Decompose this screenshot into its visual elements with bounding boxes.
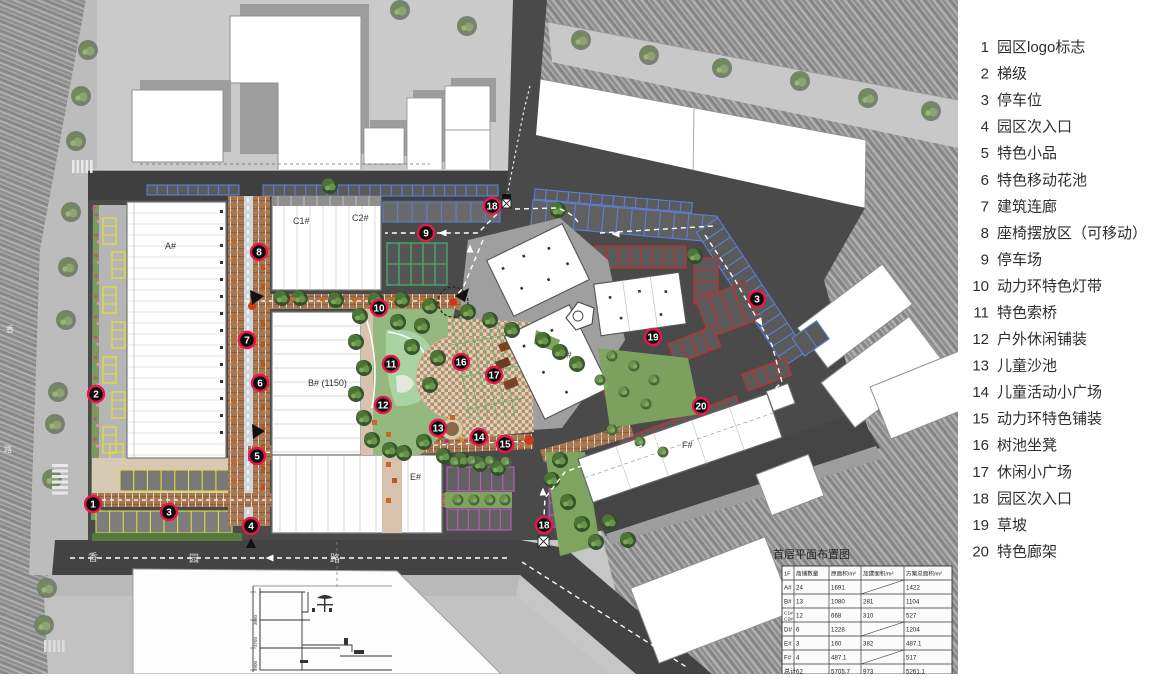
svg-text:香: 香 bbox=[88, 552, 98, 564]
svg-text:特色移动花池: 特色移动花池 bbox=[997, 172, 1087, 189]
svg-text:儿童沙池: 儿童沙池 bbox=[997, 357, 1057, 375]
svg-text:2: 2 bbox=[981, 66, 989, 83]
svg-text:15: 15 bbox=[972, 411, 989, 428]
svg-text:B#: B# bbox=[784, 599, 792, 606]
svg-text:17: 17 bbox=[972, 464, 989, 481]
svg-text:18: 18 bbox=[538, 521, 550, 532]
svg-text:18: 18 bbox=[486, 202, 498, 213]
svg-text:6: 6 bbox=[257, 379, 263, 390]
svg-text:7: 7 bbox=[244, 336, 250, 347]
svg-text:3900: 3900 bbox=[253, 660, 258, 671]
svg-text:3650: 3650 bbox=[253, 614, 258, 625]
svg-text:园区logo标志: 园区logo标志 bbox=[997, 39, 1085, 56]
svg-text:园区次入口: 园区次入口 bbox=[997, 490, 1072, 507]
svg-text:特色小品: 特色小品 bbox=[997, 145, 1057, 162]
svg-text:特色索桥: 特色索桥 bbox=[997, 305, 1057, 322]
svg-text:13: 13 bbox=[796, 599, 803, 606]
svg-text:C1#: C1# bbox=[784, 611, 793, 617]
svg-text:160: 160 bbox=[831, 641, 842, 648]
svg-text:62: 62 bbox=[796, 669, 803, 675]
svg-text:D#: D# bbox=[784, 627, 792, 634]
svg-text:1228: 1228 bbox=[831, 627, 845, 634]
svg-text:C2#: C2# bbox=[784, 617, 793, 623]
svg-text:3: 3 bbox=[981, 92, 989, 109]
svg-text:281: 281 bbox=[863, 599, 874, 606]
svg-text:A#: A# bbox=[784, 585, 792, 592]
svg-text:休闲小广场: 休闲小广场 bbox=[997, 464, 1072, 481]
svg-text:特色廊架: 特色廊架 bbox=[997, 544, 1057, 561]
svg-text:儿童活动小广场: 儿童活动小广场 bbox=[997, 383, 1102, 401]
svg-text:4: 4 bbox=[981, 119, 989, 136]
svg-text:1691: 1691 bbox=[831, 585, 845, 592]
svg-text:总计: 总计 bbox=[784, 668, 796, 675]
svg-text:停车场: 停车场 bbox=[997, 251, 1042, 268]
svg-text:16: 16 bbox=[972, 437, 989, 454]
svg-text:动力环特色铺装: 动力环特色铺装 bbox=[997, 411, 1102, 428]
svg-text:草坡: 草坡 bbox=[997, 517, 1027, 534]
svg-text:517: 517 bbox=[906, 655, 917, 662]
svg-text:梯级: 梯级 bbox=[997, 66, 1027, 83]
svg-text:2: 2 bbox=[93, 390, 99, 401]
svg-text:487.1: 487.1 bbox=[906, 641, 922, 648]
svg-text:1080: 1080 bbox=[831, 599, 845, 606]
svg-text:F#: F# bbox=[784, 655, 792, 662]
svg-text:3750: 3750 bbox=[253, 636, 258, 647]
svg-text:原面积/m²: 原面积/m² bbox=[831, 570, 856, 578]
svg-text:973: 973 bbox=[863, 669, 874, 675]
svg-text:19: 19 bbox=[972, 517, 989, 534]
svg-text:园区次入口: 园区次入口 bbox=[997, 119, 1072, 136]
svg-text:停车位: 停车位 bbox=[997, 92, 1042, 109]
svg-text:1104: 1104 bbox=[906, 599, 920, 606]
svg-text:5705.7: 5705.7 bbox=[831, 669, 850, 675]
svg-text:3: 3 bbox=[754, 295, 760, 306]
svg-text:E#: E# bbox=[410, 472, 421, 482]
svg-text:香: 香 bbox=[6, 324, 14, 334]
svg-text:1204: 1204 bbox=[906, 627, 920, 634]
svg-text:E#: E# bbox=[784, 641, 792, 648]
svg-text:487.1: 487.1 bbox=[831, 655, 847, 662]
svg-text:5261.1: 5261.1 bbox=[906, 669, 925, 675]
svg-text:路: 路 bbox=[330, 552, 340, 565]
svg-text:310: 310 bbox=[863, 613, 874, 620]
svg-text:方案总面积/m²: 方案总面积/m² bbox=[906, 570, 942, 578]
svg-text:668: 668 bbox=[831, 613, 842, 620]
svg-text:14: 14 bbox=[972, 384, 989, 401]
svg-text:建筑连廊: 建筑连廊 bbox=[997, 198, 1057, 215]
svg-text:11: 11 bbox=[973, 305, 989, 322]
svg-text:C2#: C2# bbox=[352, 213, 369, 223]
svg-text:动力环特色灯带: 动力环特色灯带 bbox=[997, 278, 1102, 295]
svg-text:10: 10 bbox=[972, 278, 989, 295]
svg-text:13: 13 bbox=[972, 358, 989, 375]
svg-text:11: 11 bbox=[386, 360, 397, 371]
svg-text:14: 14 bbox=[473, 433, 485, 444]
svg-text:8: 8 bbox=[256, 248, 262, 259]
svg-text:19: 19 bbox=[647, 333, 659, 344]
svg-text:路: 路 bbox=[4, 444, 12, 454]
svg-text:加建面积/m²: 加建面积/m² bbox=[863, 570, 894, 578]
svg-text:12: 12 bbox=[972, 331, 989, 348]
svg-text:1: 1 bbox=[90, 500, 96, 511]
svg-text:18: 18 bbox=[972, 490, 989, 507]
svg-text:1: 1 bbox=[981, 39, 989, 56]
svg-text:F#: F# bbox=[682, 440, 693, 450]
svg-text:12: 12 bbox=[377, 401, 389, 412]
svg-text:1F: 1F bbox=[784, 572, 791, 578]
svg-text:树池坐凳: 树池坐凳 bbox=[997, 437, 1057, 454]
svg-text:4: 4 bbox=[248, 522, 254, 533]
svg-text:座椅摆放区（可移动）: 座椅摆放区（可移动） bbox=[997, 225, 1147, 242]
svg-text:7: 7 bbox=[981, 198, 989, 215]
svg-text:8: 8 bbox=[981, 225, 989, 242]
svg-text:3: 3 bbox=[796, 641, 800, 648]
svg-text:C1#: C1# bbox=[293, 216, 310, 226]
svg-text:15: 15 bbox=[499, 440, 511, 451]
svg-text:6: 6 bbox=[981, 172, 989, 189]
svg-text:商铺数量: 商铺数量 bbox=[796, 570, 819, 578]
svg-text:24: 24 bbox=[796, 585, 803, 592]
svg-text:5: 5 bbox=[254, 452, 260, 463]
svg-text:首层平面布置图: 首层平面布置图 bbox=[773, 547, 850, 561]
svg-text:5: 5 bbox=[981, 145, 989, 162]
svg-text:B# (1150): B# (1150) bbox=[308, 378, 347, 388]
svg-text:A#: A# bbox=[165, 241, 176, 251]
svg-text:户外休闲铺装: 户外休闲铺装 bbox=[997, 331, 1087, 348]
svg-text:园: 园 bbox=[189, 553, 199, 565]
svg-text:9: 9 bbox=[423, 229, 429, 240]
svg-text:13: 13 bbox=[432, 424, 444, 435]
svg-text:20: 20 bbox=[972, 544, 989, 561]
svg-text:4: 4 bbox=[796, 655, 800, 662]
svg-text:3: 3 bbox=[166, 508, 172, 519]
svg-text:382: 382 bbox=[863, 641, 874, 648]
svg-text:20: 20 bbox=[695, 402, 707, 413]
svg-text:1422: 1422 bbox=[906, 585, 920, 592]
svg-text:17: 17 bbox=[488, 371, 500, 382]
svg-text:16: 16 bbox=[455, 358, 467, 369]
svg-text:527: 527 bbox=[906, 613, 917, 620]
svg-text:12: 12 bbox=[796, 613, 803, 620]
svg-text:6: 6 bbox=[796, 627, 800, 634]
svg-text:9: 9 bbox=[981, 251, 989, 268]
svg-text:10: 10 bbox=[373, 304, 385, 315]
